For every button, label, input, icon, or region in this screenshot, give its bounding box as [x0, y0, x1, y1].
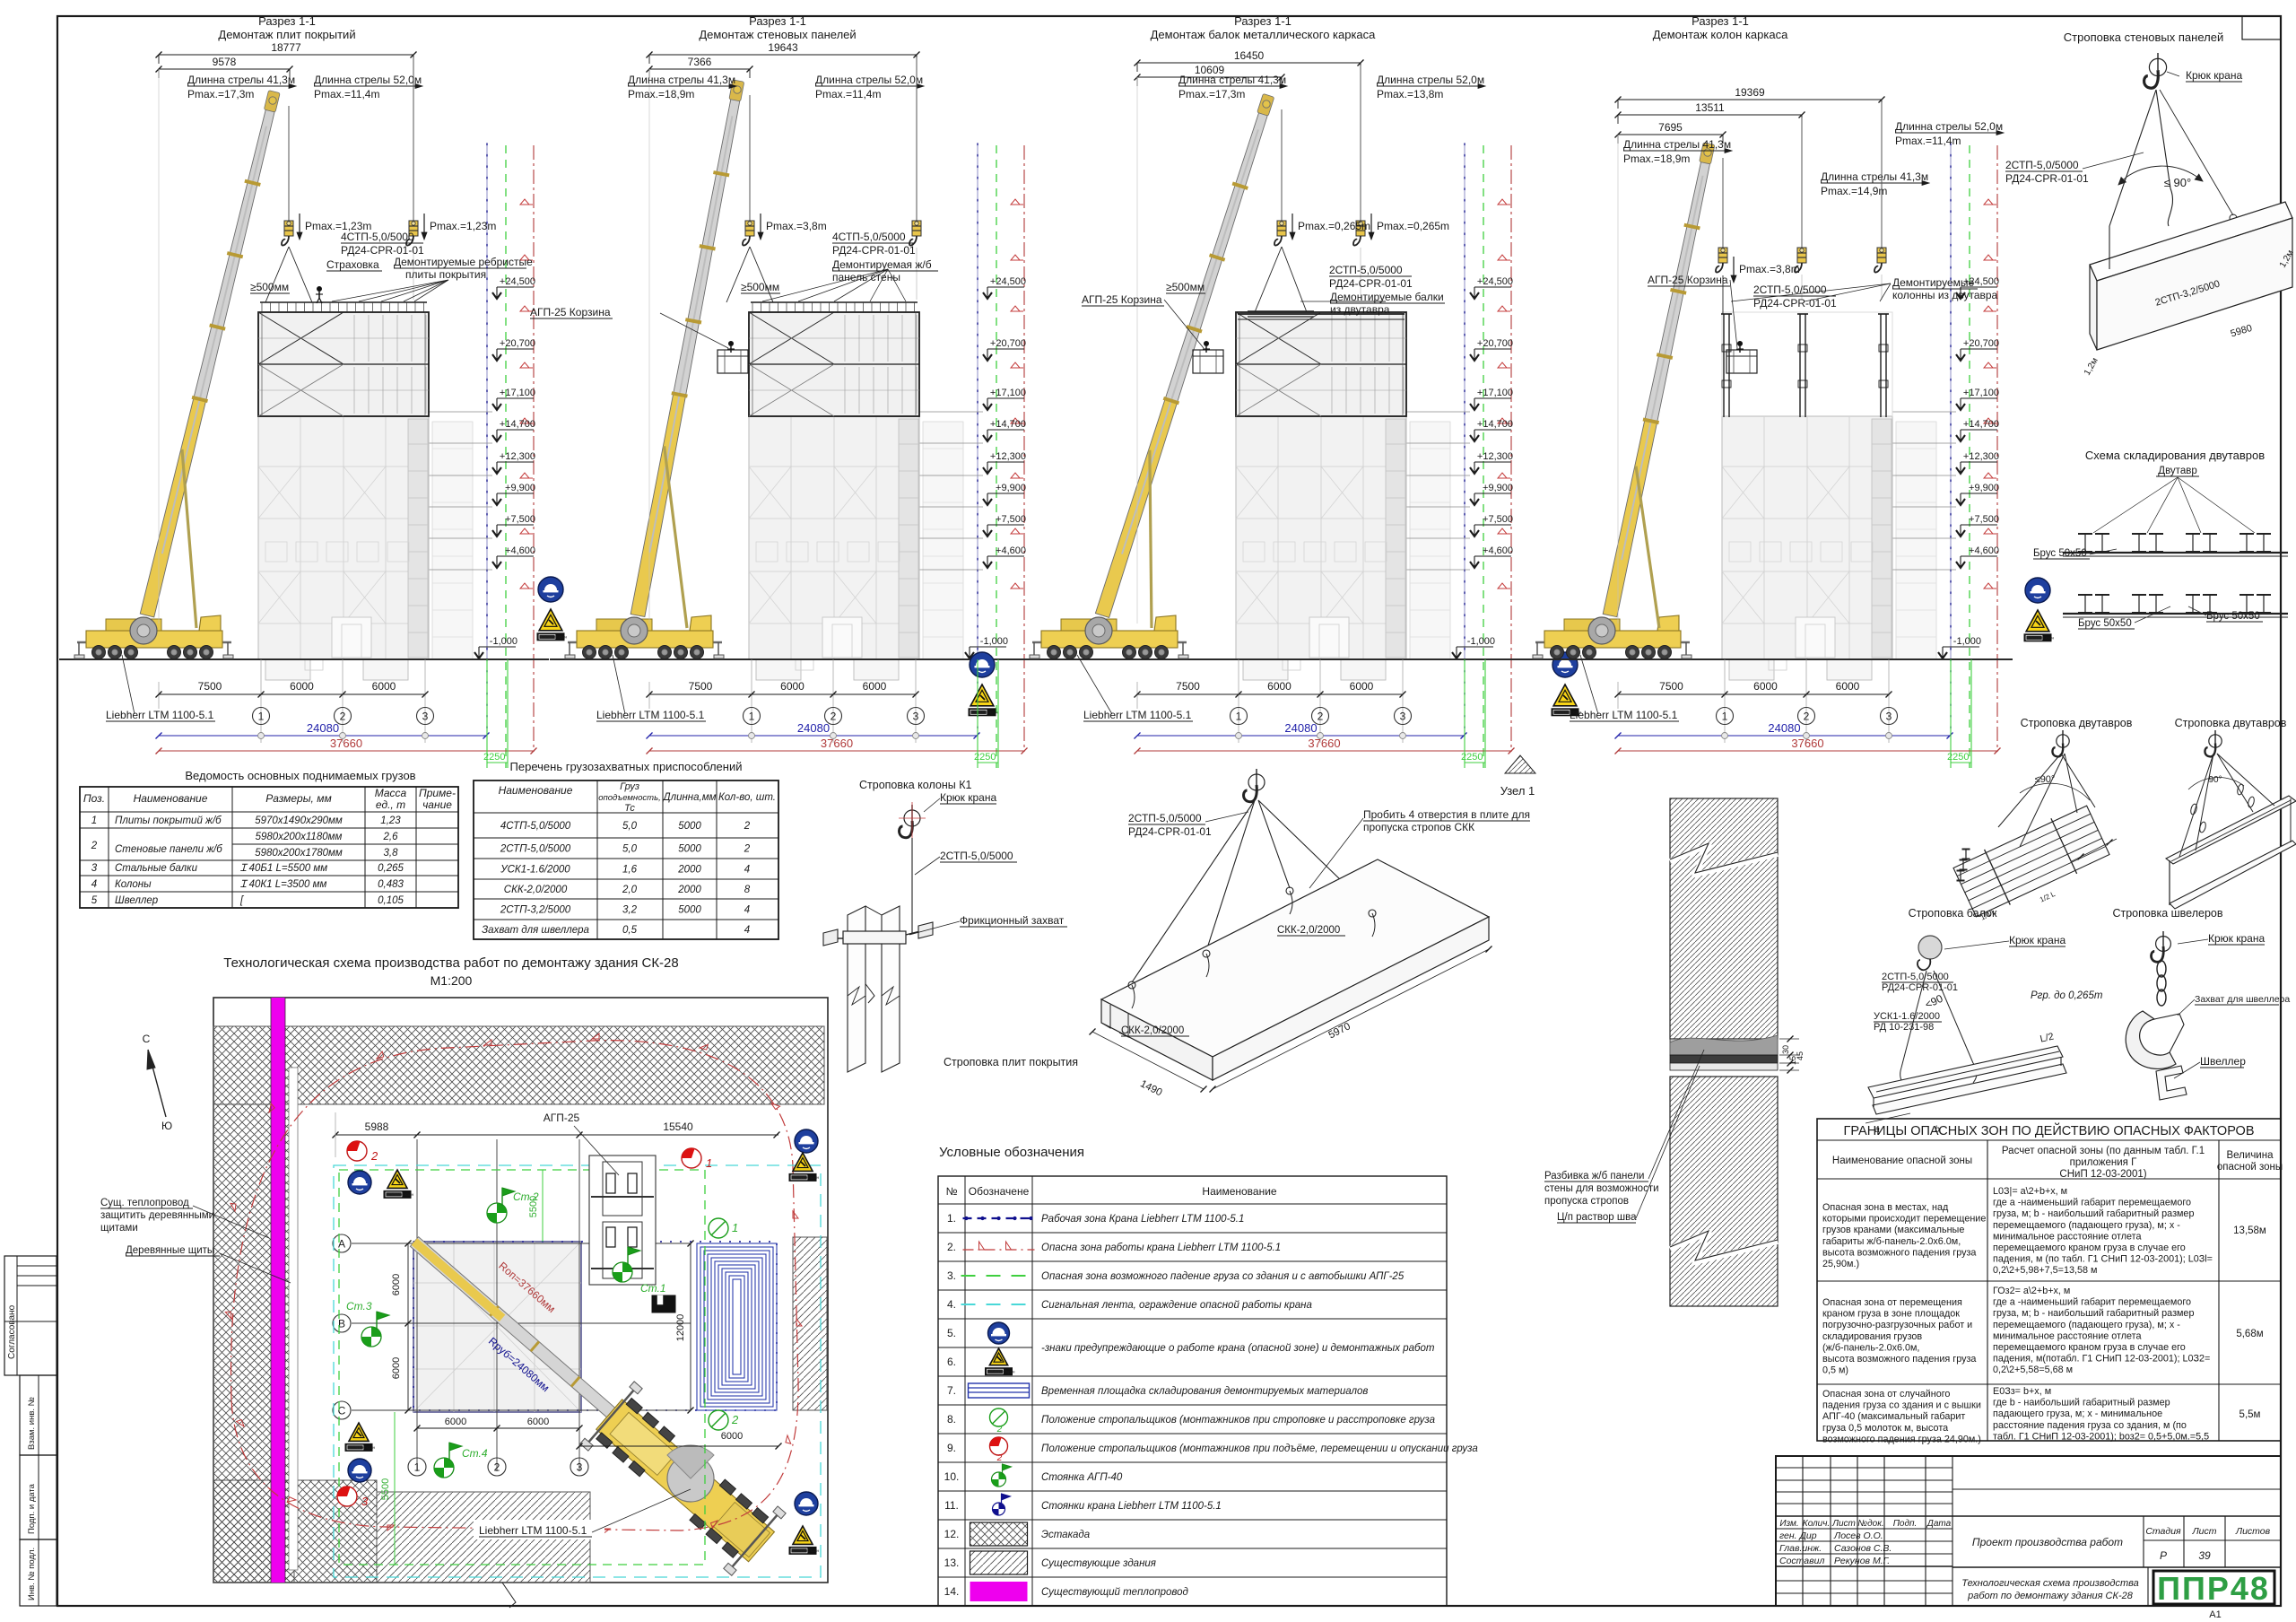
svg-text:Наименование: Наименование [1202, 1185, 1277, 1198]
svg-text:Демонтируемая ж/б: Демонтируемая ж/б [832, 258, 932, 271]
svg-text:19369: 19369 [1735, 86, 1765, 99]
svg-text:13,58м: 13,58м [2233, 1225, 2266, 1236]
svg-text:+7,500: +7,500 [996, 514, 1026, 525]
svg-text:Брус 50х50: Брус 50х50 [2033, 548, 2087, 559]
svg-text:+14,700: +14,700 [1963, 419, 1999, 430]
svg-text:ГОз2= а\2+b+х, м: ГОз2= а\2+b+х, м [1993, 1286, 2070, 1296]
svg-text:Строповка швелеров: Строповка швелеров [2112, 907, 2222, 920]
svg-text:табл. Г1 СНиП 12-03-2001); bоз: табл. Г1 СНиП 12-03-2001); bоз2= 0,5+5,0… [1993, 1431, 2209, 1442]
svg-text:Работает кран: Работает кран [988, 1369, 1015, 1373]
svg-text:Liebherr LTM 1100-5.1: Liebherr LTM 1100-5.1 [1083, 709, 1192, 721]
svg-text:Рекунов М.Г.: Рекунов М.Г. [1834, 1556, 1890, 1566]
svg-text:Перечень грузозахватных приспо: Перечень грузозахватных приспособлений [510, 760, 743, 773]
svg-text:5970х1490х290мм: 5970х1490х290мм [255, 815, 343, 826]
svg-text:0,2\2+5,98+7,5=13,58 м: 0,2\2+5,98+7,5=13,58 м [1993, 1265, 2097, 1276]
svg-text:АГП-25 Корзина: АГП-25 Корзина [1648, 274, 1728, 286]
svg-text:3: 3 [1886, 711, 1892, 723]
svg-text:щитами: щитами [100, 1223, 138, 1234]
svg-text:1,6: 1,6 [622, 865, 638, 876]
svg-text:13511: 13511 [1695, 101, 1725, 114]
svg-text:Крюк крана: Крюк крана [2208, 932, 2265, 945]
svg-text:Pmax.=1,23m: Pmax.=1,23m [430, 220, 496, 232]
svg-text:Стеновые панели ж/б: Стеновые панели ж/б [115, 844, 222, 855]
svg-text:2000: 2000 [677, 865, 701, 876]
svg-text:АГП-25 Корзина: АГП-25 Корзина [530, 306, 611, 318]
svg-text:Груз: Груз [620, 781, 639, 792]
svg-text:Длинна стрелы 52,0м: Длинна стрелы 52,0м [1895, 120, 2003, 133]
svg-text:6000: 6000 [391, 1274, 402, 1295]
svg-text:19643: 19643 [768, 41, 798, 54]
svg-text:+9,900: +9,900 [1483, 483, 1513, 493]
svg-text:2СТП-5,0/5000: 2СТП-5,0/5000 [1753, 283, 1827, 296]
svg-text:9.: 9. [947, 1442, 956, 1454]
svg-text:габариты ж/б-панель-2.0х6.0м,: габариты ж/б-панель-2.0х6.0м, [1822, 1236, 1961, 1247]
svg-text:Pmax.=17,3m: Pmax.=17,3m [187, 88, 254, 100]
svg-text:№док.: №док. [1857, 1519, 1883, 1529]
svg-text:Разрез 1-1: Разрез 1-1 [258, 14, 316, 28]
svg-text:2,6: 2,6 [383, 832, 399, 842]
svg-text:2000: 2000 [677, 885, 701, 895]
svg-text:Ст.2: Ст.2 [513, 1190, 539, 1203]
svg-text:6000: 6000 [721, 1431, 743, 1442]
svg-text:6000: 6000 [445, 1417, 466, 1427]
svg-text:Разрез 1-1: Разрез 1-1 [1234, 14, 1291, 28]
svg-text:Liebherr LTM 1100-5.1: Liebherr LTM 1100-5.1 [479, 1524, 587, 1537]
svg-text:2250: 2250 [974, 752, 996, 763]
svg-text:6000: 6000 [290, 680, 314, 693]
svg-text:падения, м (по табл. Г1 СНиП 1: падения, м (по табл. Г1 СНиП 12-03-2001)… [1993, 1254, 2213, 1265]
svg-text:Положение стропальщиков (монта: Положение стропальщиков (монтажников при… [1041, 1415, 1435, 1426]
svg-text:РД24-CPR-01-01: РД24-CPR-01-01 [1329, 277, 1413, 290]
svg-text:минимальное расстояние отлета: минимальное расстояние отлета [1993, 1330, 2142, 1341]
svg-text:Сигнальная лента, ограждение о: Сигнальная лента, ограждение опасной раб… [1041, 1300, 1312, 1311]
svg-text:+9,900: +9,900 [505, 483, 535, 493]
svg-text:0,5: 0,5 [622, 925, 638, 936]
svg-text:падающего груза, м; х - минима: падающего груза, м; х - минимальное [1993, 1408, 2162, 1419]
svg-text:РД24-CPR-01-01: РД24-CPR-01-01 [341, 244, 424, 257]
svg-text:возможного падения груза 24,90: возможного падения груза 24,90м.) [1822, 1434, 1981, 1444]
svg-text:Величина: Величина [2227, 1150, 2274, 1161]
svg-text:9578: 9578 [213, 56, 237, 68]
svg-text:+14,700: +14,700 [990, 419, 1026, 430]
svg-text:3: 3 [577, 1461, 583, 1474]
svg-text:11.: 11. [944, 1499, 959, 1512]
svg-text:+14,700: +14,700 [500, 419, 535, 430]
svg-text:СКК-2,0/2000: СКК-2,0/2000 [504, 885, 568, 895]
svg-text:5,0: 5,0 [622, 844, 638, 855]
svg-text:1: 1 [1236, 711, 1242, 723]
svg-text:РД 10-231-98: РД 10-231-98 [1874, 1022, 1934, 1033]
svg-text:6000: 6000 [372, 680, 396, 693]
svg-text:грузов кранами (максимальные: грузов кранами (максимальные [1822, 1225, 1964, 1235]
svg-text:2: 2 [340, 711, 346, 723]
svg-text:25,90м.): 25,90м.) [1822, 1259, 1859, 1269]
svg-text:+14,700: +14,700 [1477, 419, 1513, 430]
svg-text:3,2: 3,2 [622, 905, 638, 916]
svg-text:колонны из двутавра: колонны из двутавра [1892, 289, 1998, 301]
svg-text:+4,600: +4,600 [1969, 545, 1999, 556]
svg-text:Ргр. до 0,265т: Ргр. до 0,265т [2031, 990, 2103, 1001]
svg-text:плиты покрытия: плиты покрытия [405, 268, 486, 281]
svg-text:3.: 3. [947, 1269, 956, 1282]
svg-text:высота возможного падения груз: высота возможного падения груза [1822, 1354, 1976, 1365]
svg-text:Захват для швеллера: Захват для швеллера [482, 925, 589, 936]
svg-text:A1: A1 [2209, 1609, 2221, 1620]
svg-text:1,23: 1,23 [380, 815, 401, 826]
svg-text:2: 2 [744, 844, 751, 855]
svg-text:0,5 м): 0,5 м) [1822, 1365, 1848, 1376]
svg-text:2СТП-5,0/5000: 2СТП-5,0/5000 [2005, 159, 2079, 171]
svg-text:Pmax.=11,4m: Pmax.=11,4m [314, 88, 379, 100]
svg-text:Дата: Дата [1926, 1519, 1952, 1529]
svg-text:Опасная зона в местах, над: Опасная зона в местах, над [1822, 1202, 1949, 1213]
svg-text:2250: 2250 [1947, 752, 1969, 763]
svg-text:Ведомость основных поднимаемых: Ведомость основных поднимаемых грузов [185, 769, 415, 782]
svg-text:-знаки предупреждающие о работ: -знаки предупреждающие о работе крана (о… [1041, 1343, 1435, 1354]
svg-text:6000: 6000 [1836, 680, 1860, 693]
svg-text:14.: 14. [944, 1585, 960, 1598]
svg-text:Работает кран: Работает кран [348, 1445, 375, 1450]
svg-text:Узел 1: Узел 1 [1500, 784, 1535, 798]
svg-text:2: 2 [731, 1413, 739, 1426]
svg-text:Разбивка ж/б панели: Разбивка ж/б панели [1544, 1171, 1645, 1182]
svg-text:Технологическая схема производ: Технологическая схема производства [1961, 1578, 2139, 1589]
svg-text:+9,900: +9,900 [1969, 483, 1999, 493]
svg-text:Опасна зона работы крана Lie: Опасна зона работы крана Liebherr LTM 11… [1041, 1243, 1281, 1253]
svg-text:4: 4 [744, 925, 750, 936]
svg-text:6.: 6. [947, 1356, 956, 1368]
svg-text:Демонтируемые ребристые: Демонтируемые ребристые [394, 256, 533, 268]
svg-text:-1,000: -1,000 [1467, 636, 1495, 647]
svg-text:Страховка: Страховка [326, 258, 379, 271]
svg-text:Изм.: Изм. [1779, 1519, 1798, 1529]
svg-text:Плиты покрытий ж/б: Плиты покрытий ж/б [115, 815, 222, 826]
svg-text:4: 4 [91, 879, 97, 890]
svg-text:5.: 5. [947, 1327, 956, 1339]
svg-text:+24,500: +24,500 [500, 276, 535, 287]
svg-text:Строповка балок: Строповка балок [1909, 907, 1997, 920]
svg-text:СНиП 12-03-2001): СНиП 12-03-2001) [2059, 1169, 2146, 1180]
svg-text:Наименование опасной зоны: Наименование опасной зоны [1832, 1155, 1972, 1166]
svg-text:Ст.3: Ст.3 [346, 1300, 372, 1312]
svg-text:Швеллер: Швеллер [115, 895, 159, 906]
svg-text:4СТП-5,0/5000: 4СТП-5,0/5000 [832, 231, 906, 243]
svg-text:Стоянки крана Liebherr LTM: Стоянки крана Liebherr LTM 1100-5.1 [1041, 1501, 1222, 1512]
svg-text:Демонтаж колон каркаса: Демонтаж колон каркаса [1653, 28, 1788, 41]
svg-text:+9,900: +9,900 [996, 483, 1026, 493]
svg-text:АГП-25: АГП-25 [544, 1112, 580, 1124]
svg-text:Условные обозначения: Условные обозначения [939, 1145, 1084, 1160]
svg-text:Pmax.=11,4m: Pmax.=11,4m [815, 88, 881, 100]
svg-text:1: 1 [732, 1221, 738, 1234]
svg-text:37660: 37660 [1308, 737, 1340, 750]
svg-text:24080: 24080 [797, 721, 830, 735]
svg-text:С: С [143, 1033, 151, 1045]
svg-text:2: 2 [1804, 711, 1810, 723]
svg-text:4.: 4. [947, 1298, 956, 1311]
svg-text:Проект производства работ: Проект производства работ [1972, 1536, 2123, 1548]
svg-text:7500: 7500 [1176, 680, 1200, 693]
svg-text:Строповка двутавров: Строповка двутавров [2175, 717, 2287, 729]
svg-text:≤ 90°: ≤ 90° [2164, 176, 2191, 189]
svg-text:Разрез 1-1: Разрез 1-1 [1692, 14, 1749, 28]
svg-text:1: 1 [1722, 711, 1728, 723]
svg-text:3: 3 [91, 863, 98, 874]
svg-text:ГРАНИЦЫ ОПАСНЫХ ЗОН ПО ДЕЙСТВИ: ГРАНИЦЫ ОПАСНЫХ ЗОН ПО ДЕЙСТВИЮ ОПАСНЫХ … [1843, 1122, 2254, 1138]
svg-text:защитить деревянными: защитить деревянными [100, 1210, 214, 1221]
svg-text:Работает кран: Работает кран [2027, 635, 2054, 640]
svg-text:2: 2 [494, 1461, 500, 1474]
svg-text:Работает кран: Работает кран [387, 1192, 413, 1197]
svg-text:+12,300: +12,300 [990, 451, 1026, 462]
svg-text:Опасная зона от перемещения: Опасная зона от перемещения [1822, 1297, 1962, 1308]
svg-text:Длинна стрелы 41,3м: Длинна стрелы 41,3м [1178, 74, 1286, 86]
svg-text:Колич.: Колич. [1803, 1519, 1830, 1529]
svg-text:39: 39 [2198, 1549, 2211, 1562]
svg-text:АПГ-40 (максимальный габарит: АПГ-40 (максимальный габарит [1822, 1411, 1965, 1422]
svg-text:Длинна стрелы 41,3м: Длинна стрелы 41,3м [1821, 170, 1928, 183]
svg-text:Крюк крана: Крюк крана [940, 791, 996, 804]
svg-text:+7,500: +7,500 [505, 514, 535, 525]
svg-text:УСК1-1.6/2000: УСК1-1.6/2000 [500, 865, 570, 876]
svg-text:Разрез 1-1: Разрез 1-1 [749, 14, 806, 28]
svg-text:2250: 2250 [483, 752, 505, 763]
svg-text:5500: 5500 [380, 1478, 391, 1500]
svg-text:где а -наименьший габарит пере: где а -наименьший габарит перемещаемого [1993, 1297, 2191, 1308]
svg-text:РД24-CPR-01-01: РД24-CPR-01-01 [1753, 297, 1837, 310]
svg-text:6000: 6000 [863, 680, 887, 693]
svg-text:b: b [1935, 1125, 1940, 1135]
svg-text:2.: 2. [947, 1241, 956, 1253]
svg-text:1: 1 [414, 1461, 421, 1474]
svg-text:Ст.4: Ст.4 [462, 1447, 488, 1460]
svg-text:Сазонов С.В.: Сазонов С.В. [1834, 1543, 1892, 1554]
svg-text:Существующий теплопровод: Существующий теплопровод [1041, 1587, 1188, 1598]
svg-text:где b - наибольший габаритный: где b - наибольший габаритный размер [1993, 1398, 2170, 1408]
svg-text:Длинна стрелы 52,0м: Длинна стрелы 52,0м [314, 74, 422, 86]
svg-text:Лосев О.О.: Лосев О.О. [1833, 1530, 1883, 1541]
svg-text:погрузочно-разгрузочных работ: погрузочно-разгрузочных работ и [1822, 1320, 1972, 1330]
svg-text:Длинна стрелы 41,3м: Длинна стрелы 41,3м [628, 74, 735, 86]
svg-text:≤90°: ≤90° [2035, 774, 2056, 785]
svg-text:4СТП-5,0/5000: 4СТП-5,0/5000 [500, 821, 571, 832]
svg-text:2СТП-3,2/5000: 2СТП-3,2/5000 [500, 905, 571, 916]
svg-text:Длинна стрелы 41,3м: Длинна стрелы 41,3м [187, 74, 295, 86]
svg-text:8.: 8. [947, 1413, 956, 1426]
svg-text:Стоянка АГП-40: Стоянка АГП-40 [1041, 1472, 1123, 1483]
svg-text:7366: 7366 [688, 56, 712, 68]
svg-text:Наименование: Наименование [134, 792, 208, 805]
svg-text:12000: 12000 [675, 1314, 686, 1342]
svg-text:0,265: 0,265 [378, 863, 404, 874]
svg-text:Крюк крана: Крюк крана [2009, 934, 2066, 946]
svg-text:+20,700: +20,700 [1477, 338, 1513, 349]
svg-text:Pmax.=14,9m: Pmax.=14,9m [1821, 185, 1887, 197]
svg-text:Liebherr LTM 1100-5.1: Liebherr LTM 1100-5.1 [1570, 709, 1678, 721]
svg-text:7500: 7500 [1659, 680, 1683, 693]
svg-text:2: 2 [370, 1149, 378, 1163]
svg-text:13.: 13. [944, 1557, 960, 1569]
svg-text:1: 1 [258, 711, 265, 723]
svg-text:падения груза со здания и с вы: падения груза со здания и с вышки [1822, 1400, 1981, 1411]
svg-text:Брус 50х50: Брус 50х50 [2206, 611, 2260, 622]
svg-text:3: 3 [361, 1495, 369, 1508]
svg-text:которыми происходит перемещени: которыми происходит перемещение [1822, 1214, 1986, 1225]
svg-text:груза, м; b - наибольший габар: груза, м; b - наибольший габаритный разм… [1993, 1208, 2194, 1219]
svg-text:0,2\2+5,58=5,68 м: 0,2\2+5,58=5,68 м [1993, 1365, 2073, 1375]
svg-text:Размеры, мм: Размеры, мм [265, 792, 331, 805]
svg-text:Pmax.=17,3m: Pmax.=17,3m [1178, 88, 1245, 100]
svg-text:Временная площадка складирован: Временная площадка складирования демонти… [1041, 1386, 1368, 1397]
svg-text:Pmax.=18,9m: Pmax.=18,9m [1623, 153, 1690, 165]
svg-text:Pmax.=18,9m: Pmax.=18,9m [628, 88, 694, 100]
svg-text:Ɪ 40Б1 L=5500 мм: Ɪ 40Б1 L=5500 мм [240, 863, 327, 874]
svg-text:+12,300: +12,300 [1477, 451, 1513, 462]
svg-text:Строповка плит покрытия: Строповка плит покрытия [944, 1056, 1078, 1068]
svg-text:4СТП-5,0/5000: 4СТП-5,0/5000 [341, 231, 414, 243]
svg-text:Работает кран: Работает кран [540, 634, 567, 639]
svg-text:3: 3 [913, 711, 919, 723]
svg-text:Расчет опасной зоны (по данным: Расчет опасной зоны (по данным табл. Г.1 [2002, 1146, 2205, 1156]
svg-text:перемещаемого (падающего груза: перемещаемого (падающего груза), м; х - [1993, 1320, 2180, 1330]
svg-text:6000: 6000 [527, 1417, 549, 1427]
svg-text:Листов: Листов [2235, 1526, 2271, 1537]
svg-text:Лист: Лист [1831, 1519, 1856, 1529]
svg-text:2: 2 [996, 1425, 1003, 1435]
svg-text:Pmax.=3,8m: Pmax.=3,8m [1739, 263, 1800, 275]
svg-text:Длинна стрелы 52,0м: Длинна стрелы 52,0м [815, 74, 923, 86]
svg-text:90°: 90° [2208, 775, 2222, 785]
svg-text:0,105: 0,105 [378, 895, 404, 906]
svg-text:Liebherr LTM 1100-5.1: Liebherr LTM 1100-5.1 [106, 709, 214, 721]
svg-text:2СТП-5,0/5000: 2СТП-5,0/5000 [1329, 264, 1403, 276]
svg-text:2СТП-5,0/5000: 2СТП-5,0/5000 [1128, 812, 1202, 824]
svg-text:a: a [1874, 1125, 1880, 1135]
svg-text:пропуска стропов: пропуска стропов [1544, 1196, 1629, 1207]
svg-text:5: 5 [91, 895, 98, 906]
svg-text:Пробить 4 отверстия в плите дл: Пробить 4 отверстия в плите для [1363, 808, 1530, 821]
svg-text:5000: 5000 [678, 905, 701, 916]
svg-text:РД24-CPR-01-01: РД24-CPR-01-01 [1882, 982, 1958, 993]
svg-text:Работает кран: Работает кран [792, 1175, 819, 1180]
svg-text:+17,100: +17,100 [990, 388, 1026, 398]
svg-text:опасной зоны: опасной зоны [2217, 1162, 2283, 1173]
svg-text:РД24-CPR-01-01: РД24-CPR-01-01 [832, 244, 916, 257]
svg-text:работ по демонтажу здания СК-2: работ по демонтажу здания СК-28 [1967, 1591, 2134, 1601]
svg-text:Ɪ 40К1 L=3500 мм: Ɪ 40К1 L=3500 мм [240, 879, 327, 890]
svg-text:Технологическая схема производ: Технологическая схема производства работ… [223, 955, 678, 971]
svg-text:стены для возможности: стены для возможности [1544, 1183, 1659, 1194]
svg-text:Длинна стрелы 52,0м: Длинна стрелы 52,0м [1377, 74, 1484, 86]
svg-text:Pmax.=13,8m: Pmax.=13,8m [1377, 88, 1443, 100]
svg-text:5,5м: 5,5м [2239, 1409, 2261, 1420]
svg-text:2,0: 2,0 [622, 885, 638, 895]
svg-text:СКК-2,0/2000: СКК-2,0/2000 [1277, 925, 1340, 936]
svg-text:ППР48: ППР48 [2157, 1570, 2270, 1607]
svg-text:ед., т: ед., т [376, 798, 405, 811]
svg-text:расстояние падения груза со зд: расстояние падения груза со здания, м (п… [1993, 1420, 2187, 1431]
svg-text:Эстакада: Эстакада [1041, 1530, 1090, 1540]
svg-text:СКК-2,0/2000: СКК-2,0/2000 [1121, 1025, 1184, 1036]
svg-text:1.: 1. [947, 1212, 956, 1225]
svg-text:минимальное расстояние отлета: минимальное расстояние отлета [1993, 1231, 2142, 1242]
svg-text:высота возможного падения груз: высота возможного падения груза [1822, 1247, 1976, 1258]
svg-text:Ц/п раствор шва: Ц/п раствор шва [1557, 1212, 1637, 1223]
svg-text:Демонтаж стеновых панелей: Демонтаж стеновых панелей [699, 28, 856, 41]
svg-text:Лист: Лист [2191, 1526, 2216, 1537]
svg-text:Наименование: Наименование [499, 784, 573, 797]
svg-text:15540: 15540 [663, 1121, 693, 1133]
svg-text:груза 0,5 молоток м, высота: груза 0,5 молоток м, высота [1822, 1423, 1948, 1434]
svg-text:4: 4 [744, 865, 750, 876]
svg-text:-1,000: -1,000 [490, 636, 517, 647]
svg-text:1: 1 [91, 815, 97, 826]
svg-text:Кол-во, шт.: Кол-во, шт. [718, 792, 776, 803]
svg-text:7.: 7. [947, 1384, 956, 1397]
svg-text:Pmax.=11,4m: Pmax.=11,4m [1895, 135, 1961, 147]
svg-text:6000: 6000 [1350, 680, 1374, 693]
svg-text:Двутавр: Двутавр [2158, 466, 2196, 476]
svg-text:Р: Р [2160, 1549, 2167, 1562]
svg-text:18777: 18777 [271, 41, 301, 54]
svg-text:Длинна стрелы 41,3м: Длинна стрелы 41,3м [1623, 138, 1731, 151]
svg-text:пропуска стропов СКК: пропуска стропов СКК [1363, 821, 1474, 833]
svg-text:складирования грузов: складирования грузов [1822, 1331, 1922, 1342]
svg-text:4: 4 [744, 905, 750, 916]
svg-text:2: 2 [91, 841, 98, 851]
svg-text:7500: 7500 [689, 680, 713, 693]
svg-text:-1,000: -1,000 [980, 636, 1008, 647]
svg-text:+12,300: +12,300 [500, 451, 535, 462]
svg-text:6000: 6000 [780, 680, 804, 693]
svg-text:Pmax.=3,8m: Pmax.=3,8m [766, 220, 827, 232]
svg-text:5000: 5000 [678, 821, 701, 832]
svg-text:6000: 6000 [1753, 680, 1778, 693]
svg-text:АГП-25 Корзина: АГП-25 Корзина [1082, 293, 1162, 306]
svg-text:5980х200х1780мм: 5980х200х1780мм [255, 848, 343, 859]
svg-text:Фрикционный захват: Фрикционный захват [960, 914, 1065, 927]
svg-text:2СТП-5,0/5000: 2СТП-5,0/5000 [940, 850, 1013, 862]
svg-text:L0З|= а\2+b+х, м: L0З|= а\2+b+х, м [1993, 1186, 2067, 1197]
svg-text:+4,600: +4,600 [505, 545, 535, 556]
svg-text:(ж/б-панель-2.0х6.0м,: (ж/б-панель-2.0х6.0м, [1822, 1342, 1919, 1353]
svg-text:5988: 5988 [365, 1121, 389, 1133]
svg-text:Подп.: Подп. [1893, 1519, 1918, 1529]
svg-text:12.: 12. [944, 1528, 960, 1540]
svg-text:РД24-CPR-01-01: РД24-CPR-01-01 [1128, 825, 1212, 838]
svg-text:Ст.1: Ст.1 [640, 1282, 666, 1295]
svg-text:2: 2 [744, 821, 751, 832]
svg-text:перемещаемого краном груза в с: перемещаемого краном груза в случае его [1993, 1243, 2186, 1253]
svg-text:Строповка колоны К1: Строповка колоны К1 [859, 779, 971, 791]
svg-text:Pmax.=0,265m: Pmax.=0,265m [1298, 220, 1370, 232]
svg-text:Взам. инв. №: Взам. инв. № [27, 1397, 37, 1450]
svg-text:37660: 37660 [821, 737, 853, 750]
svg-text:Рабочая зона Крана Liebherr LT: Рабочая зона Крана Liebherr LTM 1100-5.1 [1041, 1214, 1244, 1225]
svg-text:Составил: Составил [1779, 1556, 1824, 1566]
svg-text:5,0: 5,0 [622, 821, 638, 832]
svg-text:Подп. и дата: Подп. и дата [27, 1483, 37, 1534]
svg-text:24080: 24080 [307, 721, 339, 735]
svg-text:10.: 10. [944, 1470, 960, 1483]
svg-text:Ю: Ю [161, 1120, 172, 1132]
svg-text:≥500мм: ≥500мм [250, 281, 289, 293]
svg-text:5000: 5000 [678, 844, 701, 855]
svg-text:приложения Г: приложения Г [2070, 1157, 2137, 1168]
svg-text:+17,100: +17,100 [1477, 388, 1513, 398]
svg-text:краном груза в зоне площадок: краном груза в зоне площадок [1822, 1309, 1960, 1320]
svg-text:37660: 37660 [1791, 737, 1823, 750]
